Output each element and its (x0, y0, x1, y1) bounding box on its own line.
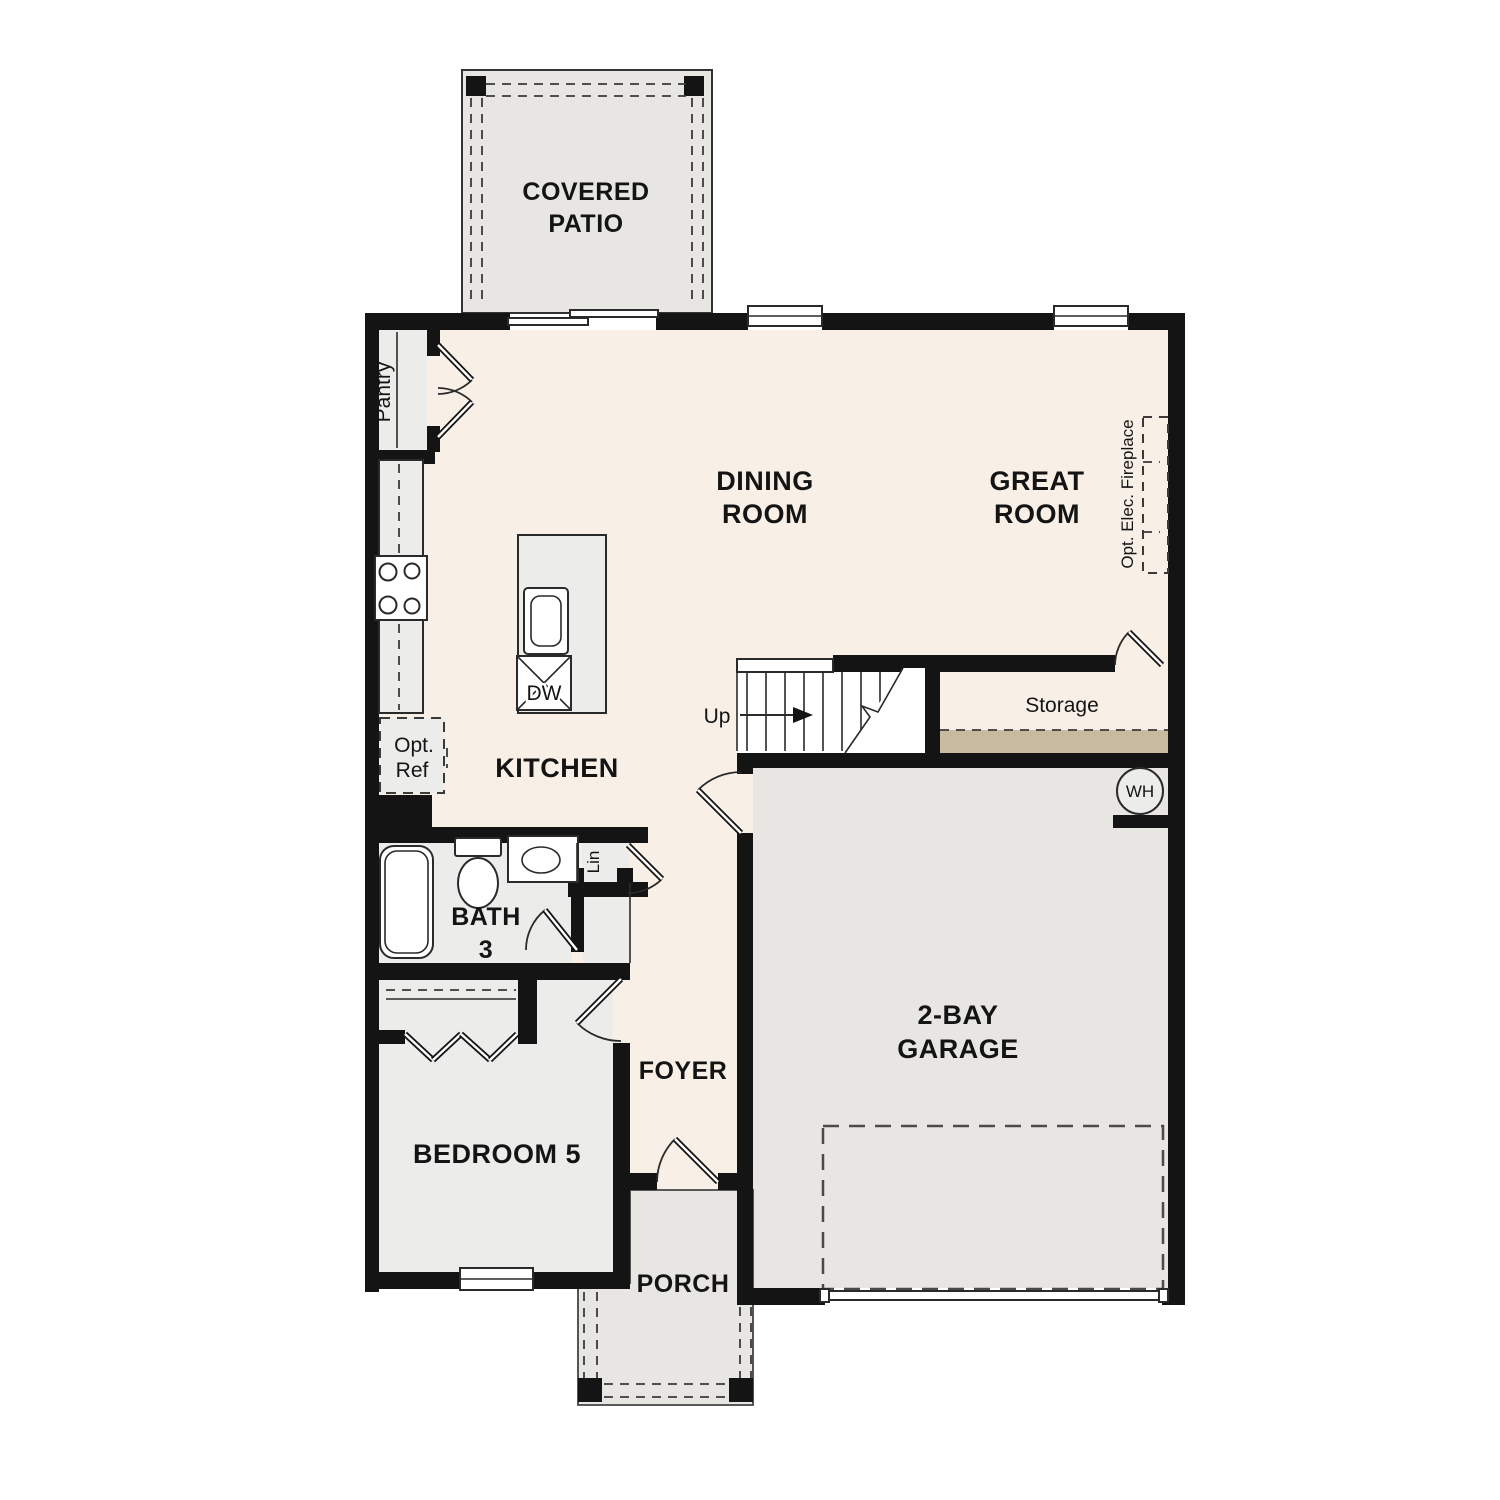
bath3-label-2: 3 (479, 936, 493, 964)
bath-vanity (508, 836, 578, 882)
wall-linen-corner (617, 868, 633, 884)
wall-storage-left (925, 655, 940, 755)
wall-closet-right (518, 963, 537, 1044)
bedroom5-label: BEDROOM 5 (413, 1139, 581, 1169)
wall-garage-front-1 (737, 1288, 825, 1305)
garage-label-2: GARAGE (897, 1034, 1019, 1064)
wall-top-1 (365, 313, 510, 330)
wall-bedroom-front-1 (365, 1272, 460, 1289)
wall-bedroom-front-2 (533, 1272, 630, 1289)
wall-pantry-stub-top (427, 330, 440, 356)
patio-post-right (684, 76, 704, 96)
water-heater: WH (1117, 768, 1163, 814)
wall-closet-stub-left (379, 1030, 405, 1044)
window-bedroom (460, 1268, 533, 1290)
stair-handrail (737, 659, 833, 672)
wall-top-2 (656, 313, 748, 330)
floor-plan-drawing: COVERED PATIO PORCH (0, 0, 1500, 1500)
floor-plan-page: COVERED PATIO PORCH (0, 0, 1500, 1500)
dining-room-label-1: DINING (716, 466, 814, 496)
porch-label: PORCH (637, 1270, 730, 1298)
wall-bedroom-right (613, 1043, 630, 1272)
wall-bath-bottom (365, 963, 630, 980)
toilet (455, 838, 501, 908)
stairs-up-label: Up (704, 705, 731, 728)
patio-post-left (466, 76, 486, 96)
pantry-label: Pantry (372, 361, 395, 422)
dishwasher-label: DW (527, 682, 562, 705)
wall-greatroom-south (833, 655, 1115, 672)
great-room-label-1: GREAT (990, 466, 1085, 496)
covered-patio-label-1: COVERED (522, 178, 649, 206)
opt-elec-fireplace-label: Opt. Elec. Fireplace (1118, 419, 1137, 568)
wall-garage-top (737, 753, 1185, 768)
window-great-room (1054, 306, 1128, 326)
kitchen-island: DW (517, 535, 606, 713)
porch-post-left (578, 1378, 602, 1402)
wall-garage-left (737, 833, 753, 1305)
wall-pantry-stub-bottom (427, 426, 440, 452)
optional-refrigerator: Opt. Ref (380, 718, 447, 793)
kitchen-label: KITCHEN (495, 753, 619, 783)
storage-label: Storage (1025, 694, 1099, 717)
bath3-label-1: BATH (451, 903, 521, 931)
cooktop (375, 556, 427, 620)
wall-kitchen-block (365, 795, 432, 843)
wall-top-3 (822, 313, 1054, 330)
foyer-label: FOYER (639, 1057, 728, 1085)
covered-patio-label-2: PATIO (548, 210, 623, 238)
window-dining (748, 306, 822, 326)
dining-room-label-2: ROOM (722, 499, 808, 529)
garage-door (820, 1289, 1168, 1302)
wall-water-heater-stub (1113, 815, 1168, 828)
wall-right (1168, 313, 1185, 1305)
water-heater-label: WH (1126, 782, 1154, 801)
wall-foyer-front-1 (630, 1173, 657, 1190)
great-room-label-2: ROOM (994, 499, 1080, 529)
opt-ref-label-2: Ref (396, 759, 429, 782)
covered-patio: COVERED PATIO (462, 70, 712, 313)
dishwasher: DW (517, 656, 571, 710)
bedroom5-floor (379, 972, 613, 1272)
porch-post-right (729, 1378, 753, 1402)
bathtub (380, 846, 433, 958)
island-sink (524, 588, 568, 654)
garage-label-1: 2-BAY (917, 1000, 998, 1030)
wall-foyer-front-2 (718, 1173, 737, 1190)
opt-ref-label-1: Opt. (394, 734, 434, 757)
wall-garage-left-stub (737, 768, 753, 774)
linen-label: Lin (584, 851, 603, 874)
storage-step-strip (940, 730, 1168, 755)
